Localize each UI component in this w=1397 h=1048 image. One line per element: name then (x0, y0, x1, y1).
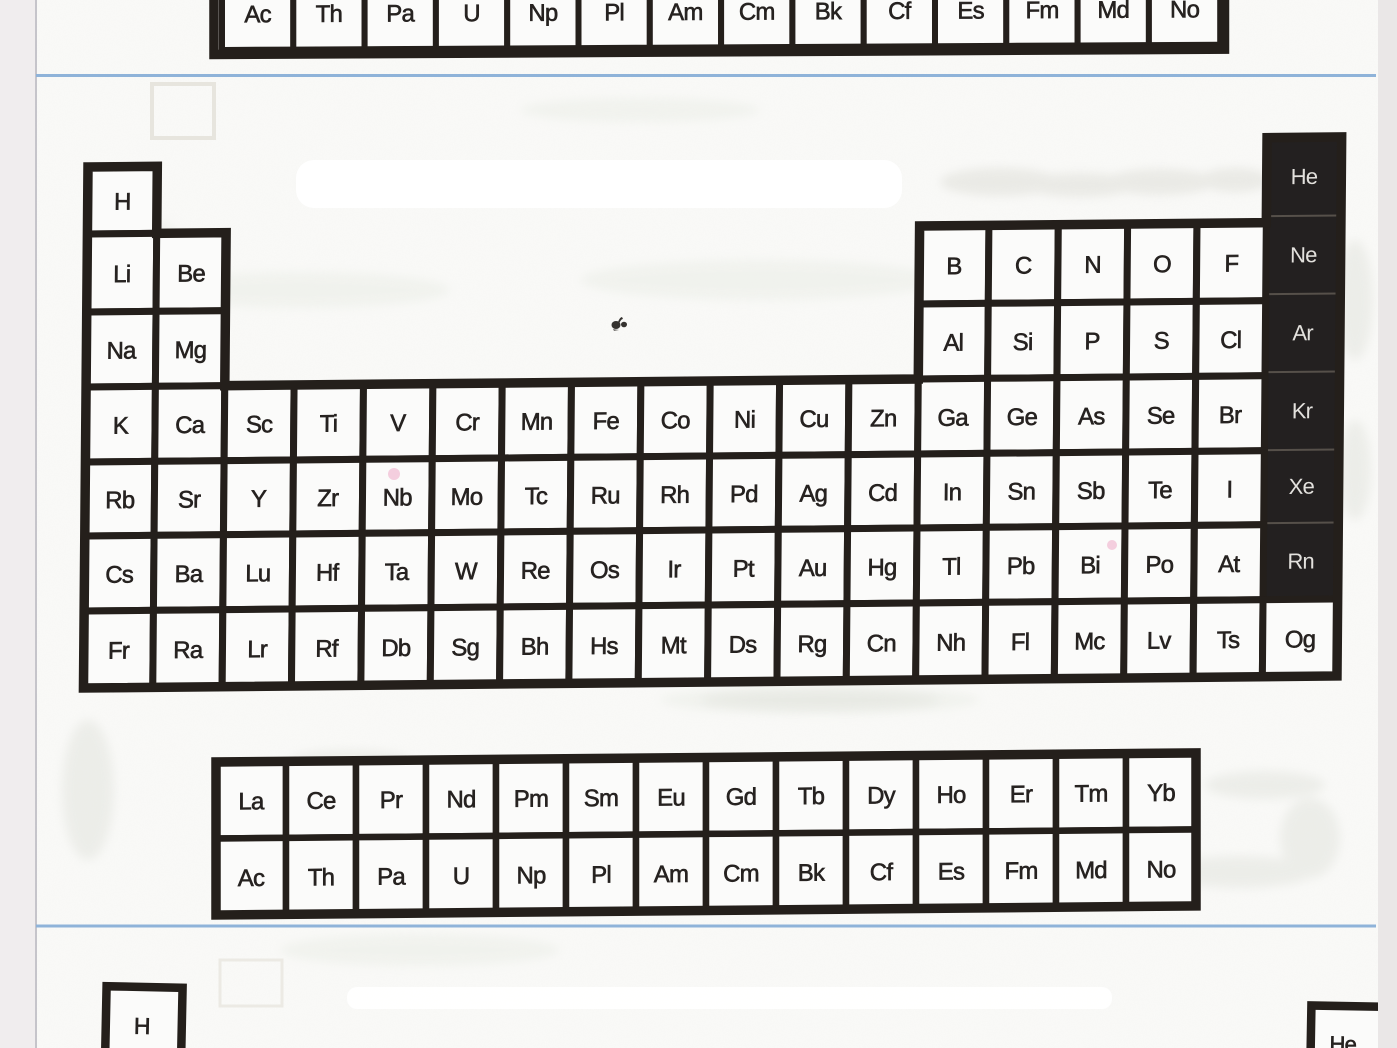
svg-text:Og: Og (1285, 626, 1316, 653)
svg-text:Se: Se (1147, 403, 1175, 430)
svg-text:Na: Na (106, 338, 137, 365)
svg-text:Ga: Ga (937, 405, 969, 432)
svg-text:Lv: Lv (1147, 628, 1172, 655)
svg-text:Ac: Ac (244, 1, 271, 28)
svg-text:Nh: Nh (936, 630, 965, 657)
svg-text:Hg: Hg (867, 554, 896, 581)
svg-text:N: N (1084, 252, 1101, 279)
svg-text:Au: Au (799, 555, 827, 582)
svg-text:Ce: Ce (306, 788, 336, 815)
svg-text:Xe: Xe (1289, 474, 1315, 499)
svg-text:Th: Th (308, 864, 334, 891)
svg-text:Te: Te (1148, 477, 1172, 504)
svg-text:Kr: Kr (1292, 398, 1313, 423)
svg-text:Es: Es (957, 0, 984, 25)
svg-text:Ds: Ds (729, 632, 758, 659)
svg-text:Am: Am (668, 0, 702, 26)
svg-text:Si: Si (1013, 329, 1033, 356)
svg-text:U: U (453, 863, 470, 890)
svg-text:Cm: Cm (723, 860, 759, 887)
svg-text:He: He (1329, 1031, 1357, 1048)
svg-text:Fe: Fe (593, 408, 620, 435)
svg-text:Mt: Mt (661, 632, 687, 659)
svg-text:Pl: Pl (604, 0, 624, 26)
svg-text:Cn: Cn (867, 630, 896, 657)
svg-text:Hf: Hf (316, 560, 340, 587)
svg-text:Cu: Cu (799, 406, 828, 433)
svg-text:Eu: Eu (657, 784, 685, 811)
svg-text:Ho: Ho (936, 782, 966, 809)
svg-text:P: P (1084, 328, 1099, 355)
svg-text:Gd: Gd (726, 784, 756, 811)
svg-text:Pb: Pb (1007, 553, 1035, 580)
svg-text:Ge: Ge (1007, 404, 1038, 431)
svg-text:Ar: Ar (1292, 320, 1313, 345)
svg-text:Co: Co (661, 407, 691, 434)
svg-text:Pl: Pl (591, 862, 611, 889)
svg-text:Nd: Nd (446, 786, 475, 813)
svg-text:Al: Al (943, 330, 963, 357)
svg-text:Dy: Dy (867, 782, 896, 809)
svg-text:Sb: Sb (1077, 478, 1105, 505)
svg-text:Cm: Cm (739, 0, 775, 26)
svg-text:K: K (113, 413, 129, 440)
svg-text:Nb: Nb (383, 484, 413, 511)
svg-text:Tm: Tm (1074, 780, 1107, 807)
svg-text:Cr: Cr (455, 409, 480, 436)
svg-text:Es: Es (938, 858, 965, 885)
svg-text:Np: Np (528, 0, 558, 27)
svg-text:Fm: Fm (1025, 0, 1058, 24)
svg-text:Pa: Pa (386, 0, 415, 27)
svg-text:Sm: Sm (584, 785, 618, 812)
svg-text:V: V (390, 410, 406, 437)
svg-text:Am: Am (654, 861, 688, 888)
svg-text:Re: Re (521, 558, 551, 585)
svg-text:C: C (1015, 252, 1032, 279)
svg-text:Ts: Ts (1217, 627, 1240, 654)
svg-text:Os: Os (590, 557, 620, 584)
svg-text:Ti: Ti (320, 411, 338, 438)
svg-text:Fr: Fr (108, 638, 130, 665)
svg-text:Pr: Pr (380, 787, 403, 814)
svg-text:Zr: Zr (317, 485, 339, 512)
svg-text:W: W (455, 558, 478, 585)
svg-text:Tl: Tl (942, 554, 961, 581)
svg-text:Bi: Bi (1080, 552, 1100, 579)
svg-text:Ru: Ru (591, 482, 620, 509)
svg-text:O: O (1153, 251, 1171, 278)
svg-text:Cd: Cd (868, 480, 897, 507)
svg-text:Mn: Mn (521, 409, 553, 436)
svg-text:Ni: Ni (734, 407, 755, 434)
svg-text:Rf: Rf (315, 636, 339, 663)
svg-text:Sn: Sn (1007, 478, 1035, 505)
svg-text:Yb: Yb (1147, 780, 1175, 807)
svg-text:Pt: Pt (733, 556, 755, 583)
svg-text:Md: Md (1097, 0, 1129, 24)
svg-text:Zn: Zn (870, 405, 897, 432)
svg-text:Cf: Cf (888, 0, 912, 25)
svg-text:La: La (238, 788, 265, 815)
svg-text:Fm: Fm (1004, 858, 1037, 885)
svg-text:Mg: Mg (174, 337, 206, 364)
svg-text:Lr: Lr (247, 636, 268, 663)
svg-text:Cs: Cs (105, 562, 134, 589)
svg-text:Pa: Pa (377, 864, 406, 891)
svg-text:Ne: Ne (1290, 242, 1317, 267)
svg-text:B: B (946, 253, 961, 280)
svg-text:Ir: Ir (667, 556, 681, 583)
svg-text:Mc: Mc (1074, 628, 1105, 655)
svg-text:Sg: Sg (451, 634, 479, 661)
svg-text:Rh: Rh (660, 482, 689, 509)
svg-text:Rg: Rg (797, 631, 826, 658)
svg-text:Pd: Pd (730, 481, 758, 508)
svg-text:Tb: Tb (798, 783, 825, 810)
svg-text:Cf: Cf (870, 859, 894, 886)
svg-text:Ta: Ta (385, 559, 410, 586)
svg-text:Li: Li (113, 261, 130, 288)
svg-text:I: I (1226, 476, 1232, 503)
svg-text:Lu: Lu (245, 560, 270, 587)
svg-text:Fl: Fl (1011, 629, 1030, 656)
svg-text:Ag: Ag (799, 480, 827, 507)
svg-text:Cl: Cl (1220, 327, 1241, 354)
svg-text:Rb: Rb (105, 487, 135, 514)
svg-text:Th: Th (316, 1, 342, 28)
svg-text:S: S (1154, 328, 1169, 355)
svg-text:Ac: Ac (238, 865, 265, 892)
svg-text:At: At (1218, 551, 1240, 578)
svg-text:As: As (1078, 403, 1105, 430)
svg-text:In: In (943, 479, 962, 506)
svg-text:Er: Er (1010, 781, 1033, 808)
svg-text:Ca: Ca (175, 412, 206, 439)
svg-text:Bh: Bh (521, 634, 549, 661)
svg-text:Ba: Ba (174, 561, 203, 588)
svg-text:Be: Be (177, 260, 205, 287)
svg-text:Ra: Ra (173, 637, 204, 664)
svg-text:U: U (463, 0, 480, 27)
svg-text:Rn: Rn (1287, 548, 1314, 573)
svg-text:Mo: Mo (451, 484, 483, 511)
svg-text:H: H (114, 189, 131, 216)
svg-text:Hs: Hs (590, 633, 619, 660)
svg-text:Sc: Sc (246, 411, 273, 438)
svg-text:H: H (134, 1013, 150, 1039)
svg-text:Sr: Sr (178, 486, 201, 513)
svg-text:Y: Y (251, 486, 267, 513)
svg-text:Db: Db (381, 635, 411, 662)
svg-text:Bk: Bk (815, 0, 843, 25)
svg-text:No: No (1146, 856, 1176, 883)
svg-text:He: He (1291, 164, 1318, 189)
svg-text:Bk: Bk (798, 860, 826, 887)
svg-text:Po: Po (1145, 552, 1173, 579)
svg-text:Br: Br (1219, 402, 1242, 429)
svg-text:Md: Md (1075, 857, 1107, 884)
svg-text:Tc: Tc (525, 483, 548, 510)
svg-text:Pm: Pm (514, 786, 548, 813)
svg-text:No: No (1170, 0, 1200, 23)
svg-text:F: F (1224, 250, 1238, 277)
svg-text:Np: Np (516, 862, 546, 889)
